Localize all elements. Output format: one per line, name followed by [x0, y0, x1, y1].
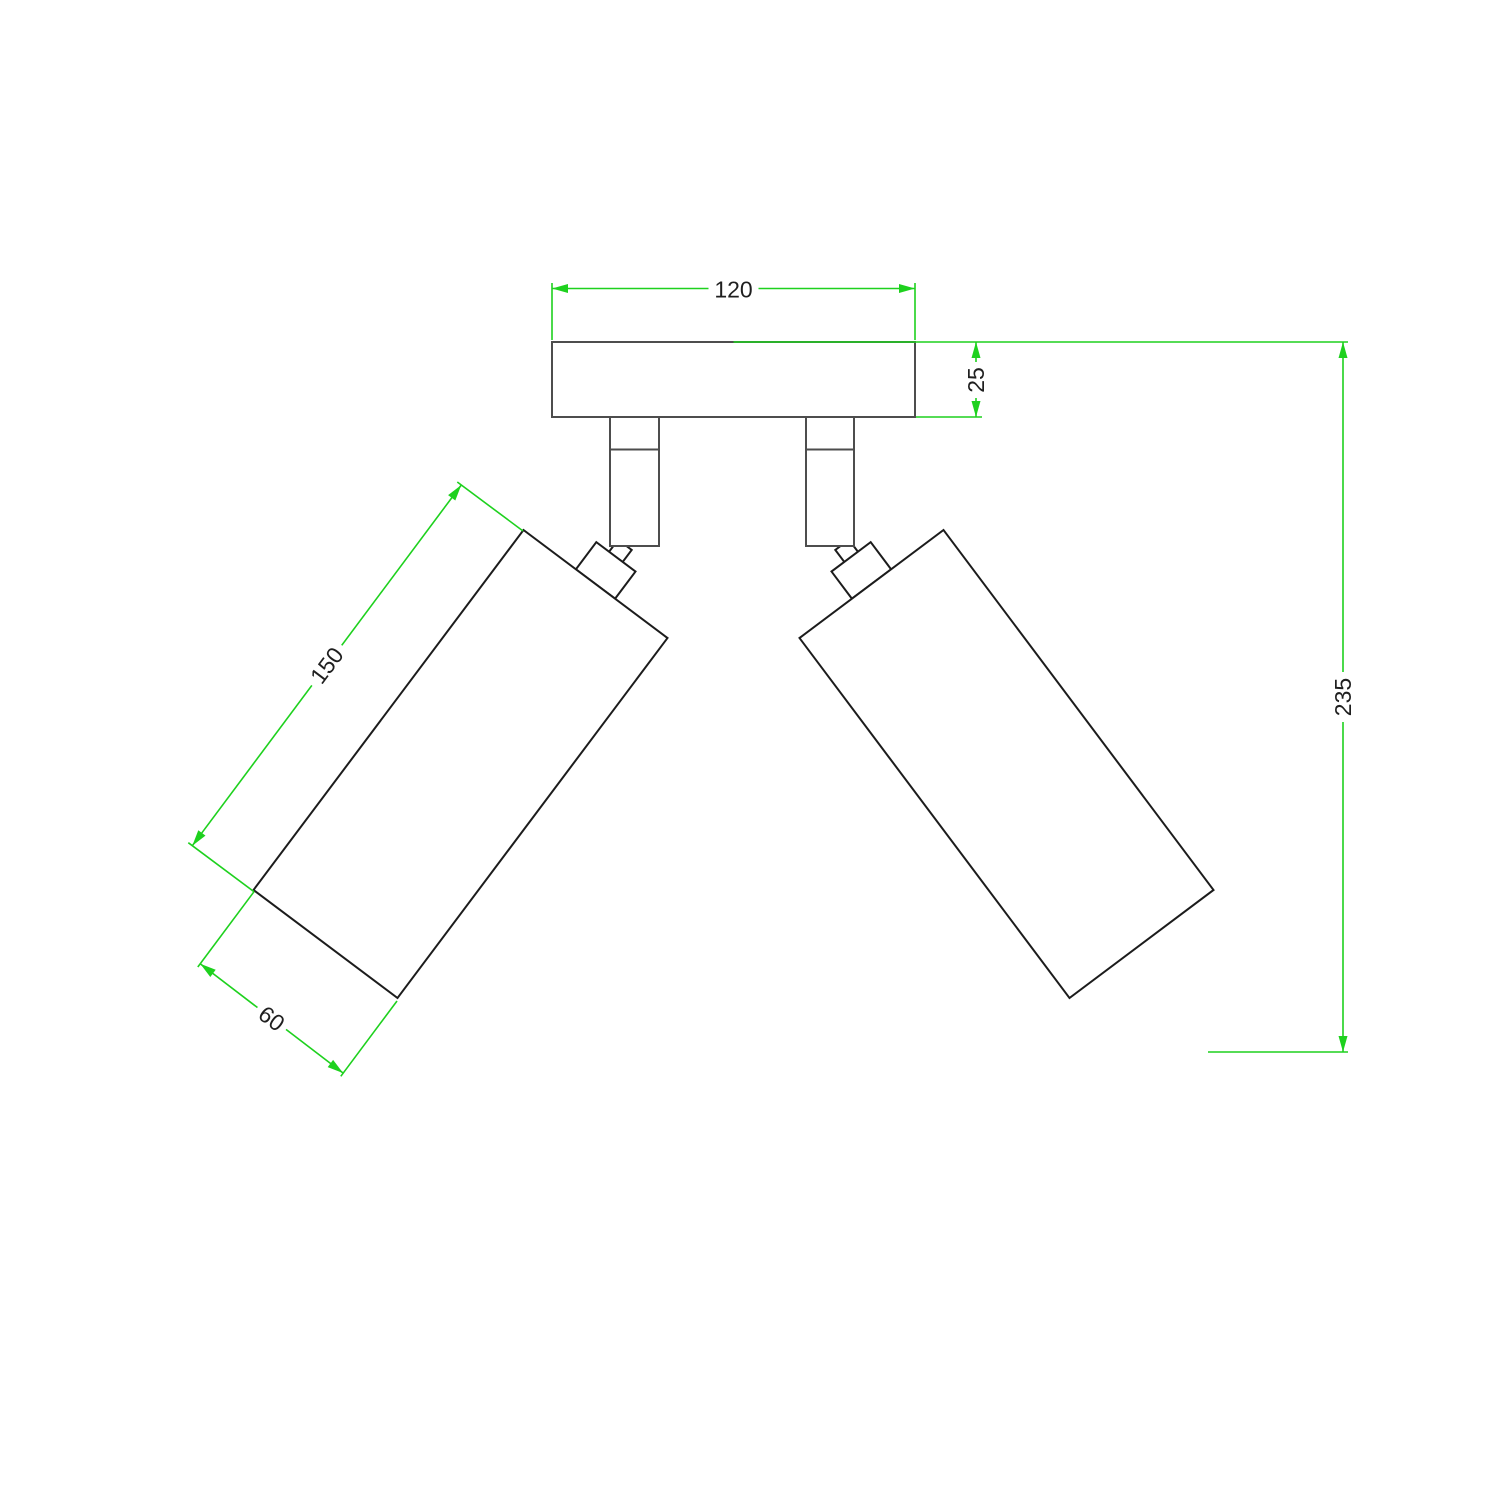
right-stem [806, 417, 854, 546]
dim-label-235: 235 [1330, 672, 1356, 722]
right-spot-body [800, 530, 1214, 998]
dim-label-120: 120 [709, 277, 759, 303]
ext-line [198, 892, 254, 967]
arrow-icon [899, 284, 915, 293]
dimension-plate-thickness: 25 [916, 342, 989, 417]
ext-line [457, 482, 523, 531]
mounting-plate [552, 342, 915, 417]
arrow-icon [972, 401, 981, 417]
dim-value-plate-thickness: 25 [963, 367, 989, 393]
ext-line [188, 843, 254, 892]
arrow-icon [552, 284, 568, 293]
fixture-hardware [552, 342, 915, 546]
drawing-canvas: 120 25 235 150 [0, 0, 1500, 1500]
left-spotlight-assembly [253, 491, 696, 998]
left-stem [610, 417, 659, 546]
technical-drawing: 120 25 235 150 [0, 0, 1500, 1500]
dim-value-plate-width: 120 [714, 277, 752, 303]
dim-label-150: 150 [301, 638, 352, 694]
ext-line [341, 1001, 397, 1076]
arrow-icon [1339, 342, 1348, 358]
arrow-icon [972, 342, 981, 358]
left-spot-body [253, 530, 667, 998]
dim-value-overall-height: 235 [1330, 678, 1356, 716]
dimension-plate-width: 120 [552, 277, 915, 341]
arrow-icon [1339, 1036, 1348, 1052]
dim-label-60: 60 [250, 997, 294, 1039]
right-spotlight-assembly [770, 491, 1213, 998]
dim-label-25: 25 [963, 362, 989, 398]
